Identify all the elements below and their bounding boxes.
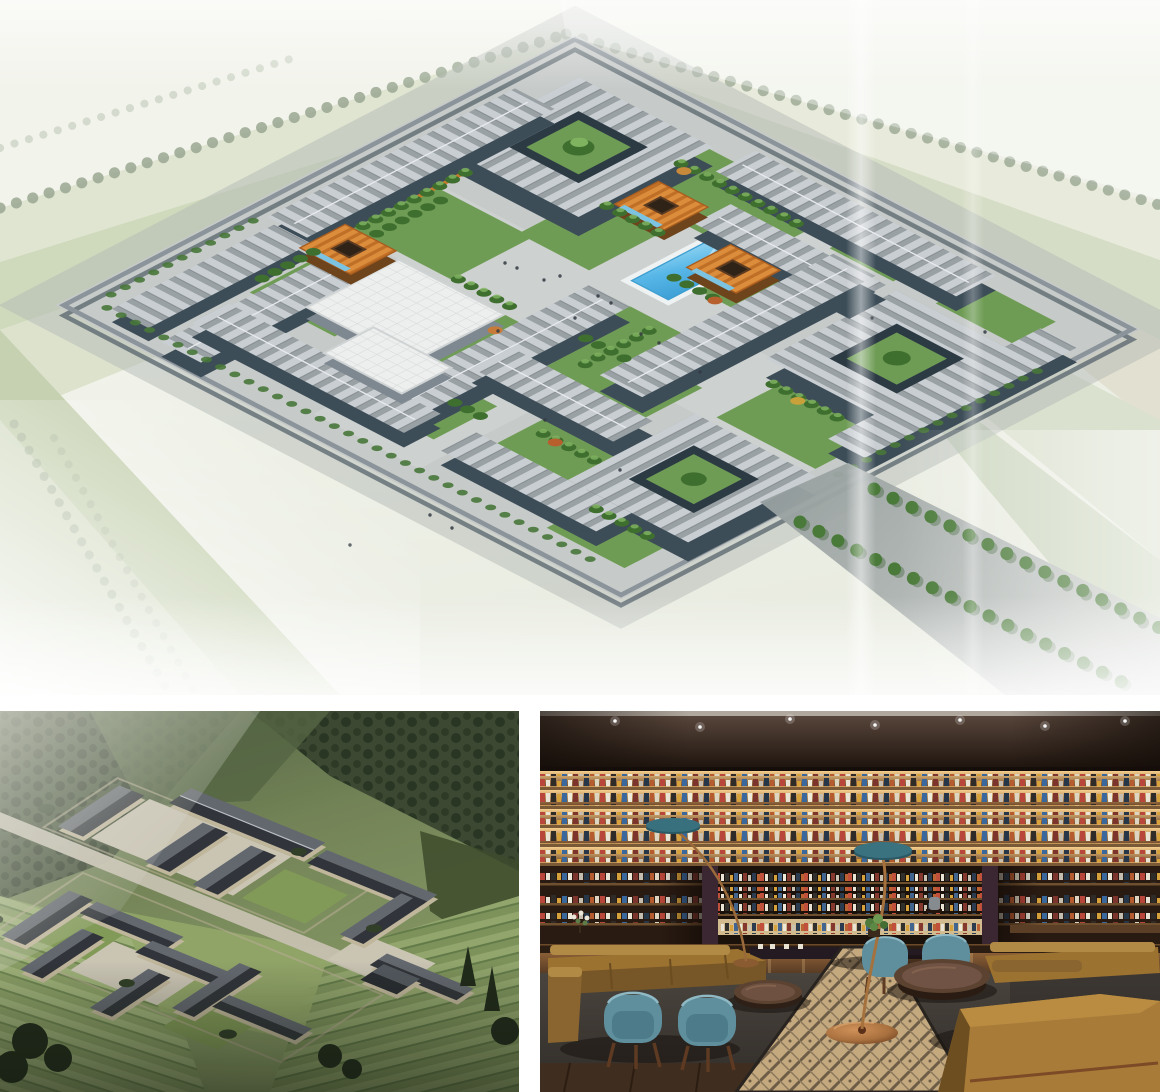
pillar-right — [982, 866, 998, 948]
panel-village-aerial — [0, 711, 519, 1092]
ceiling — [540, 711, 1160, 771]
image-collage — [0, 0, 1160, 1092]
panel-library-lounge — [540, 711, 1160, 1092]
center-alcove — [710, 866, 990, 946]
village-aerial-render — [0, 711, 519, 1092]
right-wing-shelves — [990, 866, 1160, 946]
upper-shelf-rows — [540, 771, 1160, 866]
left-wing-shelves — [540, 866, 710, 946]
side-counter — [1010, 925, 1160, 933]
bookshelf-wall — [540, 771, 1160, 953]
coffee-table-right — [894, 959, 990, 1000]
pillar-left — [702, 866, 718, 948]
library-lounge-photo — [540, 711, 1160, 1092]
coffee-table-left — [734, 980, 802, 1009]
panel-campus-aerial — [0, 0, 1160, 695]
mist-vignette — [0, 711, 519, 1092]
campus-aerial-render — [0, 0, 1160, 695]
